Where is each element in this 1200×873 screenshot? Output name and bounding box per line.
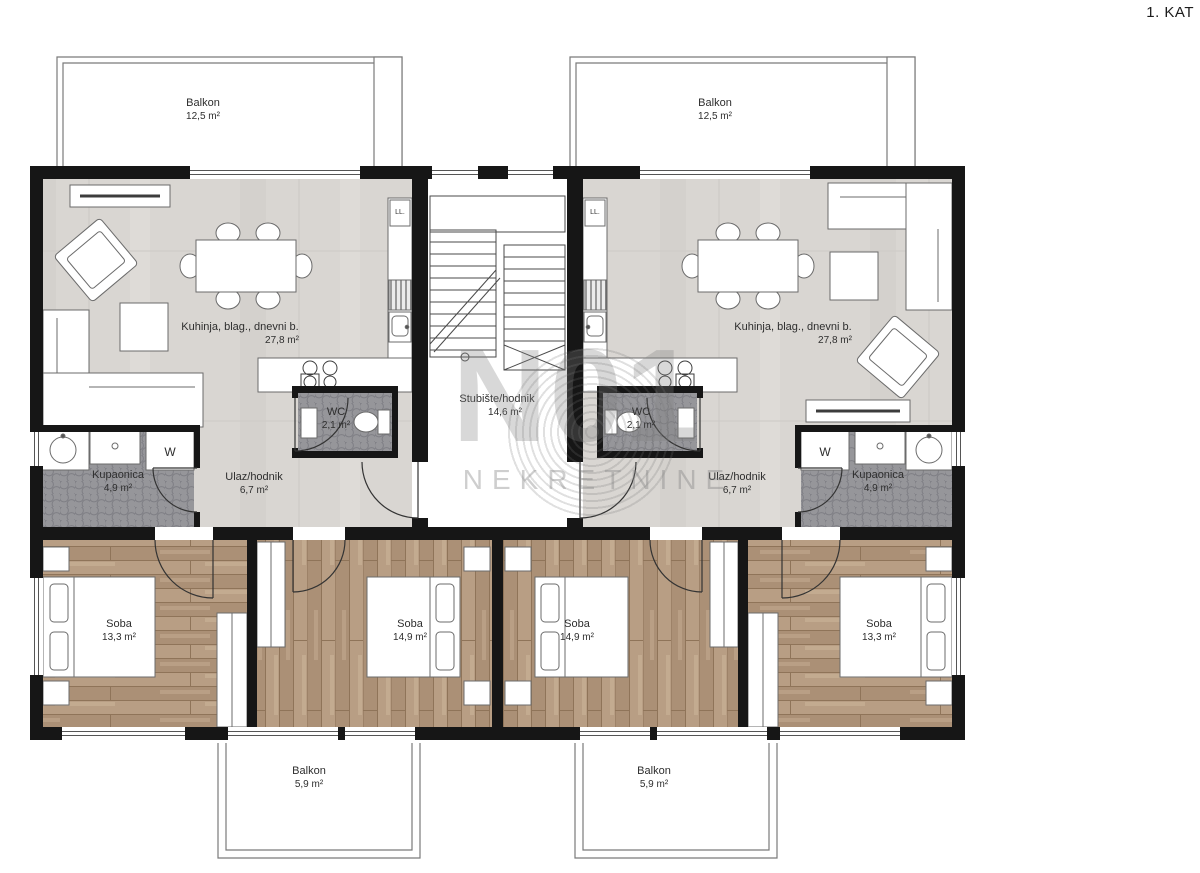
wall-wc-right (597, 393, 603, 451)
room-area: 6,7 m² (708, 485, 765, 498)
balcony-top-right-inner (576, 63, 909, 168)
label-living-right: Kuhinja, blag., dnevni b. 27,8 m² (734, 321, 851, 347)
label-bedroom-1: Soba 13,3 m² (102, 618, 136, 644)
coffee-table-right (830, 252, 878, 300)
wc-cabinet-left (301, 408, 317, 438)
room-name: Balkon (186, 97, 220, 111)
room-name: Kuhinja, blag., dnevni b. (734, 321, 851, 335)
tv-console-left (70, 185, 170, 207)
room-name: Soba (560, 618, 594, 632)
label-balkon-bottom-right: Balkon 5,9 m² (637, 765, 671, 791)
label-balkon-bottom-left: Balkon 5,9 m² (292, 765, 326, 791)
balcony-bottom-right-outline (575, 743, 777, 858)
wall-bath-left-top (30, 425, 200, 432)
balcony-bottom-right-inner (583, 743, 769, 850)
wall-wc-left (292, 393, 298, 398)
label-bedroom-4: Soba 13,3 m² (862, 618, 896, 644)
fridge-label-left: LL. (395, 209, 405, 216)
label-staircase: Stubište/hodnik 14,6 m² (459, 393, 534, 419)
wall-top (30, 166, 965, 179)
room-area: 5,9 m² (292, 779, 326, 792)
wall-bedroom-divider-right (738, 527, 748, 727)
balcony-top-left-divider (374, 57, 402, 168)
coffee-table-left (120, 303, 168, 351)
label-wc-left: WC 2,1 m² (322, 406, 350, 432)
wall-center (492, 527, 503, 727)
label-bath-left: Kupaonica 4,9 m² (92, 469, 144, 495)
room-name: Balkon (292, 765, 326, 779)
balcony-top-right-outline (570, 57, 915, 168)
room-area: 13,3 m² (102, 632, 136, 645)
nightstand (926, 681, 952, 705)
room-name: Soba (102, 618, 136, 632)
washer-label-left: W (164, 445, 176, 459)
balcony-top-left-outline (57, 57, 402, 168)
wall-shaft-left (412, 179, 428, 462)
nightstand (43, 681, 69, 705)
room-area: 14,6 m² (467, 407, 542, 420)
room-area: 27,8 m² (776, 335, 893, 348)
label-bedroom-3: Soba 14,9 m² (560, 618, 594, 644)
room-name: Kuhinja, blag., dnevni b. (181, 321, 298, 335)
bath-vanity-left (90, 430, 140, 464)
floor-plan-page: W W LL. LL. Balkon 12,5 m² Balkon 12,5 m… (0, 0, 1200, 873)
pillow (541, 584, 559, 622)
dining-table-right (698, 240, 798, 292)
wc-cabinet-right (678, 408, 694, 438)
room-name: WC (627, 406, 655, 420)
nightstand (464, 681, 490, 705)
balcony-top-right-divider (887, 57, 915, 168)
nightstand (464, 547, 490, 571)
toilet-tank-left (378, 410, 390, 434)
wall-wc-right (597, 451, 703, 458)
label-hall-right: Ulaz/hodnik 6,7 m² (708, 471, 765, 497)
label-bedroom-2: Soba 14,9 m² (393, 618, 427, 644)
wall-bath-left-side (194, 432, 200, 468)
room-area: 14,9 m² (560, 632, 594, 645)
pillow (541, 632, 559, 670)
room-area: 27,8 m² (223, 335, 340, 348)
room-name: Kupaonica (852, 469, 904, 483)
room-area: 4,9 m² (852, 483, 904, 496)
label-living-left: Kuhinja, blag., dnevni b. 27,8 m² (181, 321, 298, 347)
pillow (436, 584, 454, 622)
dining-table-left (196, 240, 296, 292)
tv-console-right (806, 400, 910, 422)
wall-bedroom-divider-left (247, 527, 257, 727)
wall-wc-right (697, 393, 703, 398)
fridge-label-right: LL. (590, 209, 600, 216)
wall-wc-left (392, 393, 398, 451)
floor-title: 1. KAT (1146, 4, 1194, 21)
wall-wc-left (292, 451, 398, 458)
room-area: 6,7 m² (225, 485, 282, 498)
room-name: Soba (393, 618, 427, 632)
balcony-bottom-left-inner (226, 743, 412, 850)
room-area: 14,9 m² (393, 632, 427, 645)
bath-vanity-right (855, 430, 905, 464)
room-name: Balkon (698, 97, 732, 111)
wall-bath-right-side (795, 432, 801, 468)
floor-plan-drawing: W W LL. LL. (0, 0, 1200, 873)
pillow (436, 632, 454, 670)
room-area: 4,9 m² (92, 483, 144, 496)
nightstand (926, 547, 952, 571)
dishwasher-right (584, 280, 606, 310)
balcony-bottom-left-outline (218, 743, 420, 858)
room-name: Ulaz/hodnik (225, 471, 282, 485)
room-name: Balkon (637, 765, 671, 779)
room-area: 12,5 m² (698, 111, 732, 124)
wall-wc-left (292, 386, 398, 393)
room-name: Ulaz/hodnik (708, 471, 765, 485)
room-name: WC (322, 406, 350, 420)
wall-wc-right (597, 386, 703, 393)
pillow (927, 584, 945, 622)
label-hall-left: Ulaz/hodnik 6,7 m² (225, 471, 282, 497)
washer-label-right: W (819, 445, 831, 459)
room-name: Stubište/hodnik (459, 393, 534, 407)
label-bath-right: Kupaonica 4,9 m² (852, 469, 904, 495)
room-area: 5,9 m² (637, 779, 671, 792)
label-balkon-top-left: Balkon 12,5 m² (186, 97, 220, 123)
wall-shaft-right (567, 179, 583, 462)
room-name: Soba (862, 618, 896, 632)
balcony-top-left-inner (63, 63, 396, 168)
room-area: 13,3 m² (862, 632, 896, 645)
pillow (927, 632, 945, 670)
toilet-tank-right (605, 410, 617, 434)
pillow (50, 632, 68, 670)
room-area: 2,1 m² (627, 420, 655, 433)
label-balkon-top-right: Balkon 12,5 m² (698, 97, 732, 123)
nightstand (43, 547, 69, 571)
room-area: 2,1 m² (322, 420, 350, 433)
toilet-left (354, 412, 378, 432)
room-area: 12,5 m² (186, 111, 220, 124)
nightstand (505, 681, 531, 705)
dishwasher-left (389, 280, 411, 310)
nightstand (505, 547, 531, 571)
pillow (50, 584, 68, 622)
label-wc-right: WC 2,1 m² (627, 406, 655, 432)
room-name: Kupaonica (92, 469, 144, 483)
wall-bath-right-top (795, 425, 965, 432)
